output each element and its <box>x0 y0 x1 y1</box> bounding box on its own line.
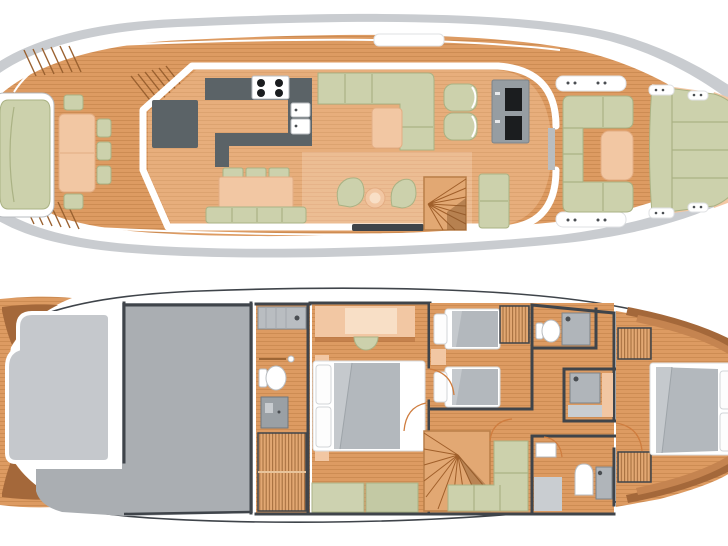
pillow <box>316 365 331 404</box>
main-deck-plan <box>0 0 728 273</box>
side-door-slot <box>352 224 424 231</box>
guest-area <box>424 303 618 515</box>
pillow <box>316 407 331 447</box>
sink-icon <box>536 443 556 457</box>
shower-icon <box>258 307 306 329</box>
helm-station <box>152 100 198 148</box>
vanity <box>602 373 613 417</box>
double-sink-icon <box>291 103 310 134</box>
bow-locker <box>7 313 110 462</box>
wardrobe <box>618 452 651 482</box>
nightstand <box>431 349 446 365</box>
helm-console <box>152 100 198 148</box>
master-bed <box>650 363 728 455</box>
armchair <box>444 113 477 140</box>
bath-mat <box>568 405 602 417</box>
spiral-staircase-main <box>424 177 466 230</box>
vip-bed <box>313 361 425 451</box>
vanity-top <box>345 308 397 334</box>
cooktop-icon <box>252 76 289 99</box>
pillow <box>434 314 447 344</box>
vip-bench <box>312 483 364 512</box>
bath-mat <box>534 477 562 511</box>
twin-bed <box>434 309 500 349</box>
armchair <box>444 84 477 111</box>
vip-bench <box>366 483 418 512</box>
mid-shower-room <box>564 369 618 421</box>
mooring-cleat <box>556 212 626 227</box>
yacht-deck-plans <box>0 0 728 546</box>
aft-sliding-door <box>548 128 555 170</box>
toilet-icon <box>259 366 286 390</box>
coffee-table <box>372 108 402 148</box>
toilet-icon <box>536 320 560 342</box>
vip-cabin <box>310 303 430 515</box>
toilet-icon <box>575 464 593 495</box>
shower-icon <box>562 313 590 345</box>
dinette-bench <box>206 207 306 223</box>
sink-icon <box>261 397 288 428</box>
day-head <box>256 304 310 514</box>
door-knob <box>288 356 294 362</box>
lower-deck-plan <box>0 273 728 546</box>
stern-sunpad <box>649 84 728 218</box>
master-cabin <box>616 307 728 507</box>
pouf-top <box>370 193 381 204</box>
wardrobe <box>618 328 651 359</box>
tv-cabinet <box>492 80 529 143</box>
roof-hatch <box>374 34 444 46</box>
twin-bed <box>434 367 500 407</box>
pillow <box>720 371 728 409</box>
aft-table <box>601 131 633 180</box>
pillow <box>720 413 728 451</box>
wardrobe <box>500 306 529 343</box>
bow-sun-bench <box>0 100 50 209</box>
nightstand <box>315 451 329 461</box>
mooring-cleat <box>556 76 626 91</box>
dinette-table <box>219 177 293 208</box>
